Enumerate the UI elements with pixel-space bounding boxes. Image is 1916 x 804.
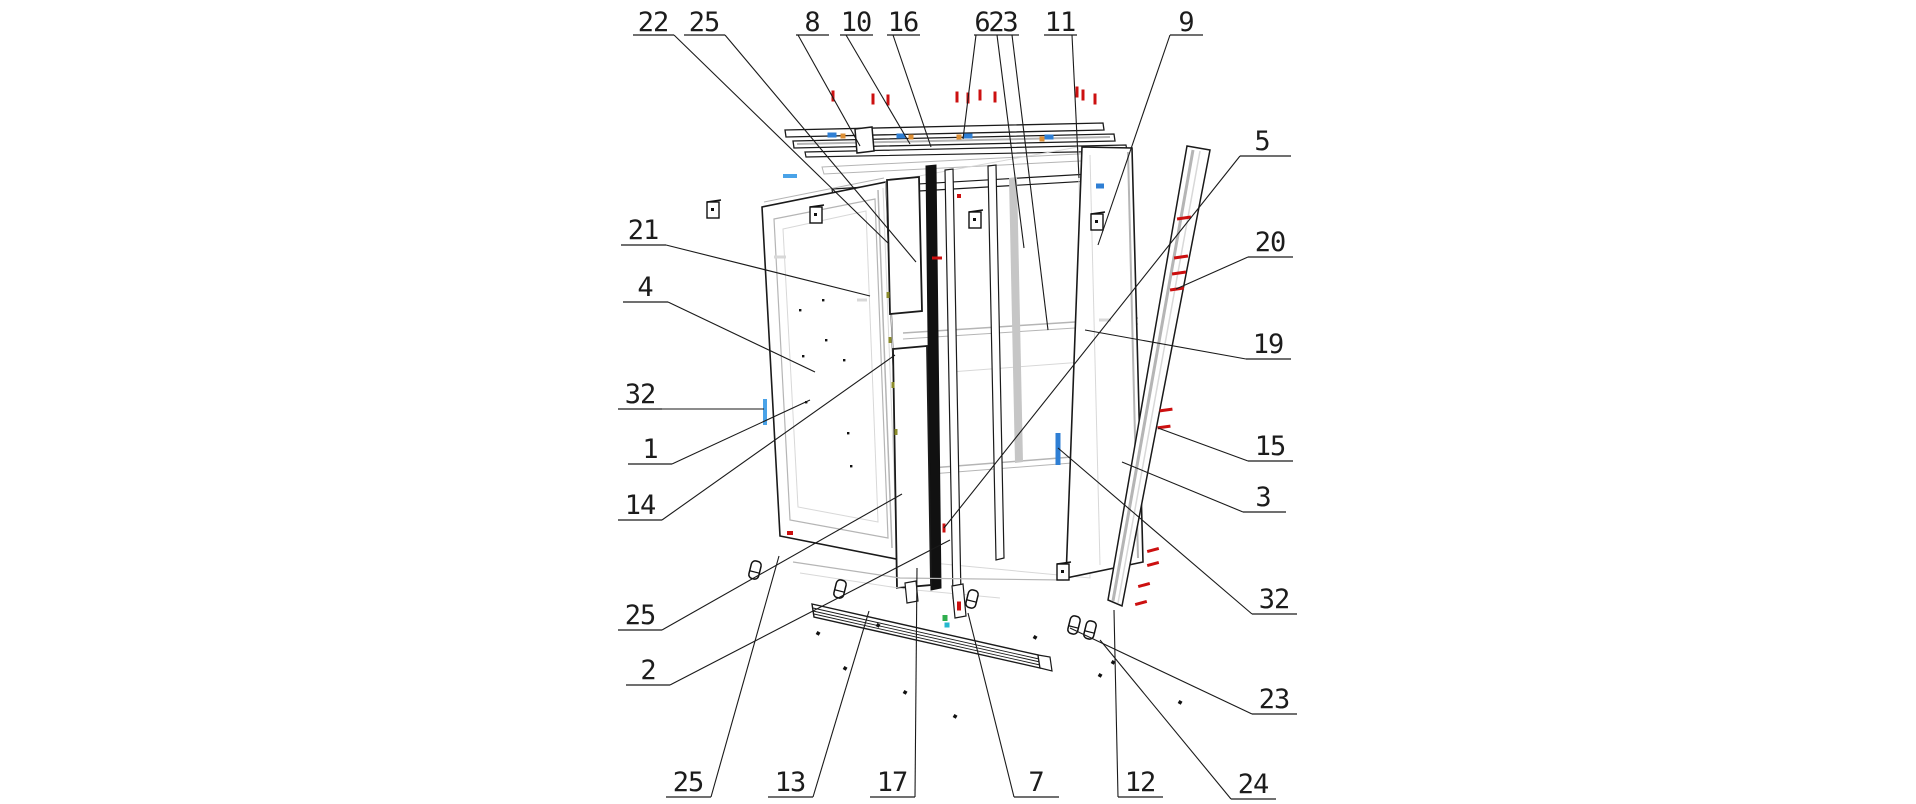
callout-32: 32 <box>618 379 764 410</box>
bottom-rail-endcap <box>1038 655 1052 671</box>
red-tick-top <box>956 92 959 103</box>
callout-label-19: 19 <box>1253 329 1284 360</box>
gray-dash <box>774 256 786 259</box>
callout-7: 7 <box>968 613 1059 798</box>
orange-clip-track <box>909 135 914 140</box>
olive-mark <box>892 382 895 388</box>
panel-hole-dot <box>825 339 827 341</box>
bottom-guide-block-2 <box>952 584 966 618</box>
red-tick-top <box>1094 94 1097 105</box>
red-dot <box>957 194 961 198</box>
partition-profile-2 <box>945 169 961 598</box>
callout-leader-6 <box>963 35 976 139</box>
screw-speck <box>1098 673 1103 678</box>
red-tick-top <box>979 90 982 101</box>
corner-bracket-icon <box>969 210 983 228</box>
blue-clip-rear <box>1096 184 1104 189</box>
callout-label-25: 25 <box>689 7 720 38</box>
red-dash-low <box>1135 600 1147 606</box>
callout-label-13: 13 <box>775 767 806 798</box>
callout-6: 6 <box>963 7 990 139</box>
corner-bracket-icon <box>1091 212 1105 230</box>
callout-leader-11 <box>1072 35 1079 178</box>
callout-label-9: 9 <box>1178 7 1193 38</box>
screw-speck <box>843 666 848 671</box>
callout-label-3: 3 <box>1002 7 1017 38</box>
callout-label-17: 17 <box>877 767 908 798</box>
callout-leader-24 <box>1100 640 1231 799</box>
blue-clip-track <box>1045 135 1054 140</box>
orange-clip-track <box>1040 137 1045 142</box>
callout-leader-7 <box>968 613 1014 797</box>
partition-profile-3 <box>988 165 1004 560</box>
blue-arrow-mark <box>783 174 797 178</box>
red-tick-top <box>994 92 997 103</box>
bottom-rail-hatch-2 <box>813 611 1040 662</box>
callout-leader-2 <box>670 540 950 685</box>
callout-label-14: 14 <box>625 490 656 521</box>
exploded-view-diagram: 2225810166231195201915332232425131771221… <box>0 0 1916 804</box>
callout-label-32: 32 <box>1259 584 1290 615</box>
callout-label-24: 24 <box>1238 769 1269 800</box>
roller-icon <box>833 579 847 599</box>
callout-label-1: 1 <box>642 434 657 465</box>
red-corner-mark <box>787 531 793 535</box>
olive-mark <box>889 337 892 343</box>
screw-speck <box>1178 700 1183 705</box>
callout-label-3: 3 <box>1255 482 1270 513</box>
orange-clip-track <box>957 135 962 140</box>
cyan-clip <box>945 623 950 628</box>
callout-12: 12 <box>1114 610 1163 798</box>
callout-25: 25 <box>666 556 779 798</box>
panel-hole-dot <box>802 355 804 357</box>
callout-23: 23 <box>1070 628 1297 715</box>
green-clip <box>943 615 948 621</box>
bottom-rail-hatch-3 <box>814 614 1040 665</box>
callout-label-16: 16 <box>888 7 919 38</box>
red-dash-low <box>1147 561 1159 567</box>
olive-mark <box>895 429 898 435</box>
callout-label-7: 7 <box>1028 767 1043 798</box>
corner-bracket-icon <box>707 200 721 218</box>
olive-mark <box>887 292 890 298</box>
callout-label-4: 4 <box>637 272 652 303</box>
callout-label-2: 2 <box>988 7 1003 38</box>
callout-16: 16 <box>887 7 931 147</box>
technical-drawing-page: 2225810166231195201915332232425131771221… <box>0 0 1916 804</box>
callout-leader-25 <box>711 556 779 797</box>
bottom-rail-hatch-1 <box>813 608 1039 659</box>
blue-clip-track <box>964 134 973 139</box>
panel-hole-dot <box>799 309 801 311</box>
top-track-endcap <box>855 127 874 153</box>
callout-leader-23 <box>1070 628 1252 714</box>
callout-3: 3 <box>1002 7 1048 330</box>
roller-icon <box>965 589 979 609</box>
red-tick-top <box>1082 90 1085 101</box>
callout-leader-13 <box>813 611 869 797</box>
callout-label-21: 21 <box>628 215 659 246</box>
red-clip-bottom <box>957 602 961 611</box>
callout-label-8: 8 <box>804 7 819 38</box>
callout-13: 13 <box>768 611 869 798</box>
callout-label-20: 20 <box>1255 227 1286 258</box>
handle-profile-upper <box>887 177 922 314</box>
callout-leader-15 <box>1158 428 1248 461</box>
red-dash-low <box>1138 582 1150 588</box>
callout-label-25: 25 <box>673 767 704 798</box>
callout-label-5: 5 <box>1254 126 1269 157</box>
red-dash-low <box>1147 547 1159 553</box>
callout-label-32: 32 <box>625 379 656 410</box>
callout-label-10: 10 <box>841 7 872 38</box>
red-tick-profile <box>932 257 942 260</box>
panel-hole-dot <box>843 359 845 361</box>
handle-profile-lower <box>893 346 931 588</box>
orange-clip-track <box>841 134 846 139</box>
red-tick-top <box>872 94 875 105</box>
callout-label-6: 6 <box>974 7 989 38</box>
bottom-guide-block-1 <box>905 581 918 603</box>
callout-label-22: 22 <box>638 7 669 38</box>
panel-hole-dot <box>850 465 852 467</box>
gray-dash <box>857 299 867 302</box>
callout-leader-17 <box>915 568 917 797</box>
corner-bracket-icon <box>810 205 824 223</box>
red-tick-top <box>1076 87 1079 98</box>
callout-leader-12 <box>1114 610 1118 797</box>
callout-15: 15 <box>1158 428 1293 462</box>
screw-speck <box>816 631 821 636</box>
blue-clip-track <box>828 133 837 138</box>
corner-bracket-icon <box>1057 562 1071 580</box>
panel-hole-dot <box>847 432 849 434</box>
callout-label-11: 11 <box>1045 7 1076 38</box>
callout-label-23: 23 <box>1259 684 1290 715</box>
callout-label-15: 15 <box>1255 431 1286 462</box>
callout-label-25: 25 <box>625 600 656 631</box>
screw-speck <box>953 714 958 719</box>
screw-speck <box>903 690 908 695</box>
callout-label-12: 12 <box>1125 767 1156 798</box>
panel-hole-dot <box>822 299 824 301</box>
red-tick-door-mid <box>1159 408 1172 413</box>
screw-speck <box>1033 635 1038 640</box>
callout-label-2: 2 <box>640 655 655 686</box>
